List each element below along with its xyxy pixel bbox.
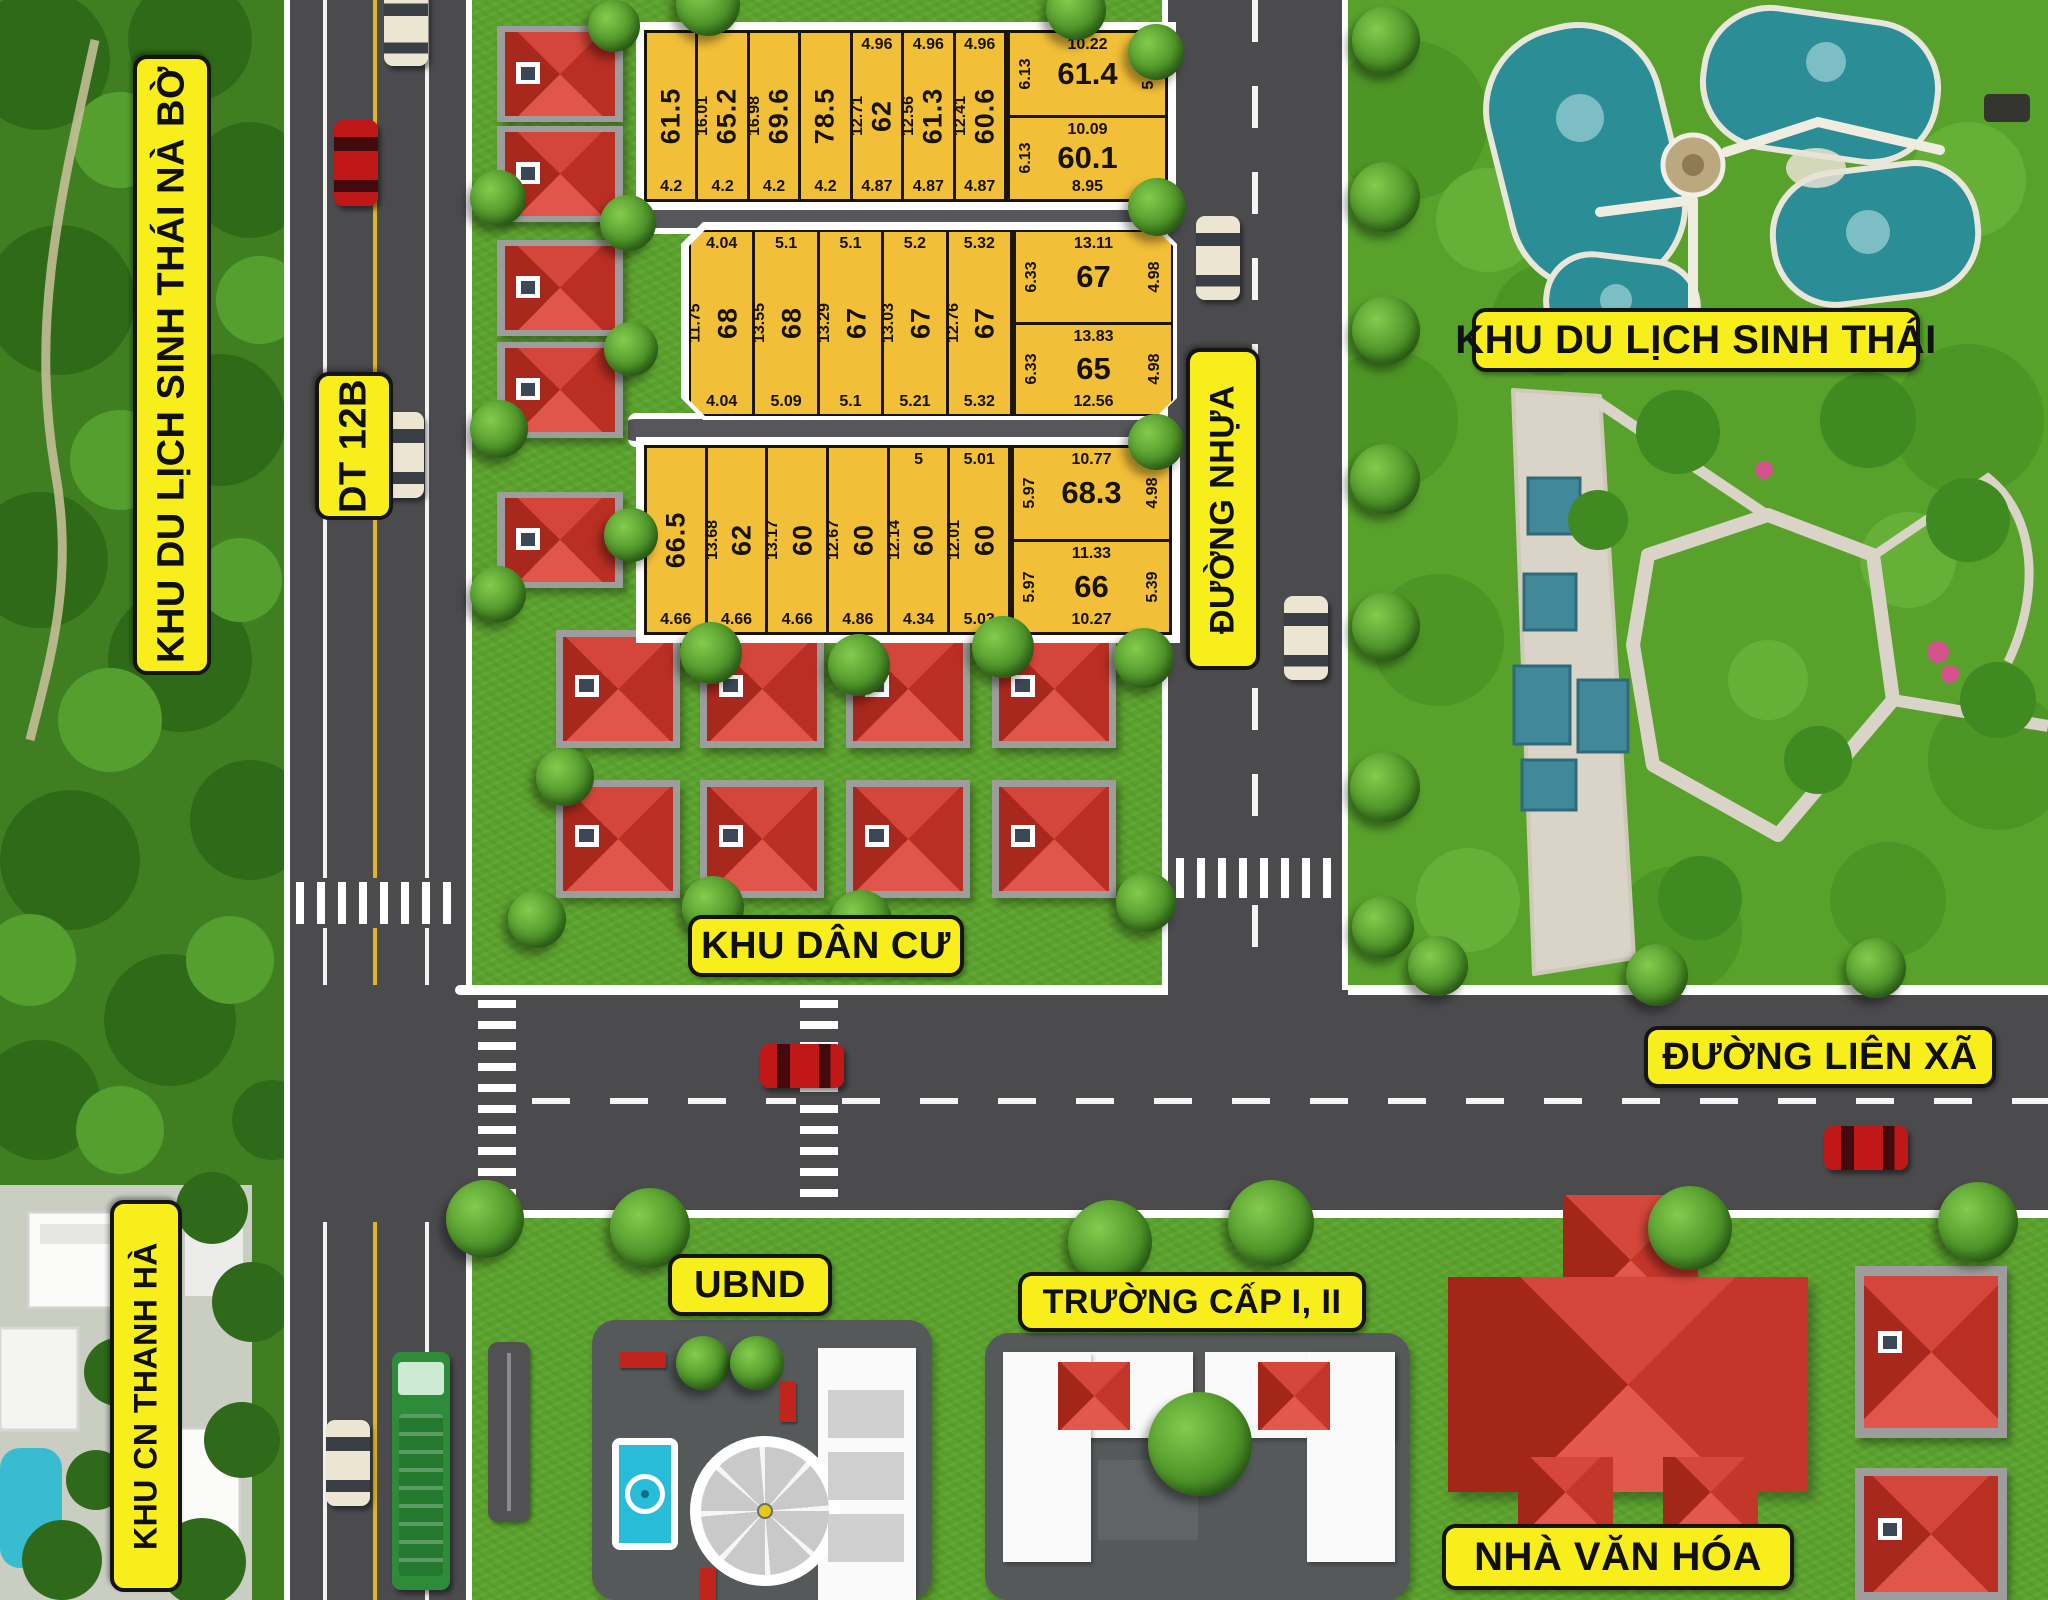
plot-dim-label: 6.13 bbox=[1017, 58, 1035, 89]
plot-dim-label: 6.33 bbox=[1023, 261, 1041, 292]
tree-icon bbox=[1116, 872, 1176, 932]
plot-area-label: 67 bbox=[1076, 259, 1110, 295]
tree-icon bbox=[1128, 24, 1184, 80]
house-icon bbox=[1855, 1468, 2007, 1600]
plot-cell: 5.15.113.2967 bbox=[820, 232, 884, 414]
plot-cell: 54.3412.1460 bbox=[890, 448, 951, 632]
plot-area-label: 78.5 bbox=[810, 88, 841, 145]
zone-label-industrial: KHU CN THANH HÀ bbox=[110, 1200, 182, 1592]
plot-dim-label: 16.98 bbox=[746, 96, 764, 136]
car-icon bbox=[384, 0, 428, 66]
plot-block-2-border: 4.044.0411.75685.15.0913.55685.15.113.29… bbox=[681, 222, 1177, 420]
car-icon bbox=[760, 1044, 844, 1088]
plot-strips: 4.044.0411.75685.15.0913.55685.15.113.29… bbox=[691, 232, 1013, 414]
tree-icon bbox=[1350, 444, 1420, 514]
tree-icon bbox=[470, 566, 526, 622]
plot-dim-label: 4.34 bbox=[890, 611, 948, 629]
plot-area-label: 68 bbox=[777, 307, 808, 339]
car-icon bbox=[1284, 596, 1328, 680]
plot-cell: 5.015.0312.0160 bbox=[950, 448, 1011, 632]
plot-area-label: 68.3 bbox=[1061, 475, 1121, 511]
plot-dim-label: 11.33 bbox=[1014, 545, 1169, 563]
plot-area-label: 67 bbox=[841, 307, 872, 339]
plot-dim-label: 5.97 bbox=[1021, 571, 1039, 602]
plot-cell: 4.964.8712.7162 bbox=[853, 33, 904, 199]
plot-dim-label: 10.27 bbox=[1014, 611, 1169, 629]
plot-dim-label: 11.75 bbox=[687, 303, 705, 342]
label-school: TRƯỜNG CẤP I, II bbox=[1018, 1272, 1366, 1332]
plot-dim-label: 5.32 bbox=[949, 393, 1010, 411]
curb bbox=[455, 985, 1168, 995]
tree-icon bbox=[1648, 1186, 1732, 1270]
road-label-duong-nhua: ĐƯỜNG NHỰA bbox=[1186, 348, 1260, 670]
label-ubnd: UBND bbox=[668, 1254, 832, 1316]
plot-dim-label: 4.2 bbox=[750, 178, 798, 196]
tree-icon bbox=[1148, 1392, 1252, 1496]
tree-icon bbox=[1938, 1182, 2018, 1262]
plot-cell: 4.261.5 bbox=[647, 33, 698, 199]
plot-cell: 4.964.8712.4160.6 bbox=[956, 33, 1007, 199]
plot-block-1: 4.261.54.216.0165.24.216.9869.64.278.54.… bbox=[644, 30, 1168, 202]
tree-icon bbox=[1128, 178, 1186, 236]
plot-dim-label: 12.67 bbox=[825, 520, 843, 560]
plot-dim-label: 13.17 bbox=[764, 520, 782, 560]
plot-dim-label: 13.83 bbox=[1016, 328, 1171, 346]
plot-dim-label: 13.68 bbox=[703, 520, 721, 560]
tree-icon bbox=[1626, 944, 1688, 1006]
plot-area-label: 60 bbox=[909, 524, 940, 556]
culture-house-building bbox=[1448, 1252, 1808, 1512]
plot-dim-label: 13.29 bbox=[816, 303, 834, 343]
tree-icon bbox=[680, 622, 742, 684]
plot-cell: 4.216.9869.6 bbox=[750, 33, 801, 199]
building-section bbox=[828, 1390, 904, 1438]
plot-dim-label: 5.97 bbox=[1021, 478, 1039, 509]
tree-icon bbox=[1228, 1180, 1314, 1266]
plot-dim-label: 4.87 bbox=[904, 178, 952, 196]
road-label-lien-xa: ĐƯỜNG LIÊN XÃ bbox=[1644, 1026, 1996, 1088]
plot-dim-label: 6.33 bbox=[1023, 354, 1041, 385]
plot-dim-label: 12.56 bbox=[1016, 393, 1171, 411]
plot-dim-label: 16.01 bbox=[694, 96, 712, 136]
fountain-icon bbox=[612, 1438, 678, 1550]
tree-icon bbox=[604, 508, 658, 562]
tree-icon bbox=[1114, 628, 1174, 688]
tree-icon bbox=[536, 748, 594, 806]
bus-shelter bbox=[488, 1342, 530, 1522]
tree-icon bbox=[1350, 162, 1420, 232]
plot-dim-label: 5.1 bbox=[755, 235, 816, 253]
plot-dim-label: 5.2 bbox=[884, 235, 945, 253]
car-icon bbox=[1196, 216, 1240, 300]
plot-area-label: 66.5 bbox=[660, 512, 691, 569]
house-icon bbox=[556, 630, 680, 748]
plot-dim-label: 4.98 bbox=[1146, 261, 1164, 292]
plot-dim-label: 5.01 bbox=[950, 451, 1008, 469]
plot-dim-label: 12.01 bbox=[946, 520, 964, 560]
plot-cell: 5.25.2113.0367 bbox=[884, 232, 948, 414]
road-label-dt12b: DT 12B bbox=[315, 372, 393, 520]
plot-cell: 4.964.8712.5661.3 bbox=[904, 33, 955, 199]
plot-dim-label: 5 bbox=[890, 451, 948, 469]
plot-block-2: 4.044.0411.75685.15.0913.55685.15.113.29… bbox=[689, 230, 1173, 416]
plot-cell: 4.216.0165.2 bbox=[698, 33, 749, 199]
center-line bbox=[532, 1098, 796, 1104]
plot-dim-label: 12.71 bbox=[848, 96, 866, 136]
tree-icon bbox=[1352, 592, 1420, 660]
plot-area-label: 61.3 bbox=[918, 88, 949, 145]
curb bbox=[466, 1215, 472, 1600]
plot-dim-label: 4.87 bbox=[956, 178, 1004, 196]
tree-icon bbox=[470, 170, 526, 226]
plot-dim-label: 5.1 bbox=[820, 235, 881, 253]
plot-dim-label: 5.1 bbox=[820, 393, 881, 411]
plot-cell: 5.325.3212.7667 bbox=[949, 232, 1013, 414]
school-roof bbox=[1258, 1362, 1330, 1430]
plot-area-label: 62 bbox=[866, 100, 897, 132]
truck-icon bbox=[392, 1352, 450, 1590]
tree-icon bbox=[508, 890, 566, 948]
tree-icon bbox=[1350, 752, 1420, 822]
plot-cell: 11.3310.275.975.3966 bbox=[1014, 542, 1169, 633]
master-plan-map: 4.261.54.216.0165.24.216.9869.64.278.54.… bbox=[0, 0, 2048, 1600]
zone-label-residential: KHU DÂN CƯ bbox=[688, 915, 964, 977]
plot-dim-label: 10.09 bbox=[1010, 121, 1165, 139]
house-icon bbox=[497, 240, 623, 336]
plot-cell: 13.8312.566.334.9865 bbox=[1016, 325, 1171, 415]
plot-dim-label: 12.56 bbox=[900, 96, 918, 136]
plot-dim-label: 4.04 bbox=[691, 235, 752, 253]
plot-cell: 4.6613.6862 bbox=[708, 448, 769, 632]
plot-area-label: 67 bbox=[970, 307, 1001, 339]
plot-area-label: 65 bbox=[1076, 351, 1110, 387]
tree-icon bbox=[470, 400, 528, 458]
tree-icon bbox=[446, 1180, 524, 1258]
plot-area-label: 67 bbox=[906, 307, 937, 339]
plot-dim-label: 4.66 bbox=[768, 611, 826, 629]
curb bbox=[466, 0, 472, 985]
curb bbox=[1342, 0, 1348, 990]
plot-dim-label: 12.41 bbox=[951, 96, 969, 136]
tree-icon bbox=[972, 616, 1034, 678]
plot-dim-label: 4.96 bbox=[956, 36, 1004, 54]
tree-icon bbox=[730, 1336, 784, 1390]
plot-dim-label: 4.04 bbox=[691, 393, 752, 411]
car-icon bbox=[334, 120, 378, 206]
plot-area-label: 60 bbox=[787, 524, 818, 556]
house-icon bbox=[1855, 1266, 2007, 1438]
tree-icon bbox=[1128, 414, 1184, 470]
plot-strips: 4.6666.54.6613.68624.6613.17604.8612.676… bbox=[647, 448, 1011, 632]
crosswalk bbox=[296, 882, 464, 924]
plot-dim-label: 12.14 bbox=[885, 520, 903, 560]
plot-cell: 13.116.334.9867 bbox=[1016, 232, 1171, 325]
plot-area-label: 62 bbox=[727, 524, 758, 556]
plot-area-label: 68 bbox=[712, 307, 743, 339]
plot-dim-label: 5.09 bbox=[755, 393, 816, 411]
house-icon bbox=[846, 780, 970, 898]
house-icon bbox=[992, 780, 1116, 898]
plot-dim-label: 4.96 bbox=[904, 36, 952, 54]
plot-area-label: 60.1 bbox=[1057, 140, 1117, 176]
plot-rightcol: 10.775.974.9868.311.3310.275.975.3966 bbox=[1011, 448, 1169, 632]
plot-cell: 4.278.5 bbox=[801, 33, 852, 199]
plot-dim-label: 4.86 bbox=[829, 611, 887, 629]
plot-dim-label: 13.11 bbox=[1016, 235, 1171, 253]
tree-icon bbox=[1408, 936, 1468, 996]
school-roof bbox=[1058, 1362, 1130, 1430]
plot-block-3: 4.6666.54.6613.68624.6613.17604.8612.676… bbox=[644, 445, 1172, 635]
plot-dim-label: 4.96 bbox=[853, 36, 901, 54]
bench bbox=[700, 1568, 716, 1600]
plot-area-label: 61.4 bbox=[1057, 56, 1117, 92]
plot-dim-label: 5.21 bbox=[884, 393, 945, 411]
plot-dim-label: 6.13 bbox=[1017, 143, 1035, 174]
plot-dim-label: 13.55 bbox=[751, 303, 769, 343]
plot-dim-label: 4.98 bbox=[1146, 354, 1164, 385]
zone-label-eco-park: KHU DU LỊCH SINH THÁI bbox=[1472, 308, 1920, 372]
tree-icon bbox=[604, 322, 658, 376]
plot-area-label: 60.6 bbox=[969, 88, 1000, 145]
plot-dim-label: 5.32 bbox=[949, 235, 1010, 253]
plot-rightcol: 13.116.334.986713.8312.566.334.9865 bbox=[1013, 232, 1171, 414]
plot-cell: 4.8612.6760 bbox=[829, 448, 890, 632]
tree-icon bbox=[1352, 896, 1414, 958]
tree-icon bbox=[588, 0, 640, 52]
tree-icon bbox=[600, 195, 656, 251]
tree-icon bbox=[1846, 938, 1906, 998]
curb bbox=[284, 0, 290, 1600]
plot-cell: 5.15.0913.5568 bbox=[755, 232, 819, 414]
plot-dim-label: 4.87 bbox=[853, 178, 901, 196]
plot-dim-label: 5.39 bbox=[1144, 571, 1162, 602]
plot-dim-label: 4.2 bbox=[647, 178, 695, 196]
plot-cell: 4.044.0411.7568 bbox=[691, 232, 755, 414]
plot-area-label: 61.5 bbox=[656, 88, 687, 145]
building-section bbox=[828, 1452, 904, 1500]
plot-dim-label: 4.98 bbox=[1144, 478, 1162, 509]
plot-cell: 4.6613.1760 bbox=[768, 448, 829, 632]
plot-dim-label: 4.2 bbox=[801, 178, 849, 196]
plot-area-label: 60 bbox=[969, 524, 1000, 556]
plot-area-label: 65.2 bbox=[712, 88, 743, 145]
car-icon bbox=[326, 1420, 370, 1506]
building-section bbox=[828, 1514, 904, 1562]
tree-icon bbox=[1352, 296, 1420, 364]
crosswalk bbox=[800, 1000, 838, 1210]
plot-strips: 4.261.54.216.0165.24.216.9869.64.278.54.… bbox=[647, 33, 1007, 199]
circular-plaza bbox=[690, 1436, 840, 1586]
plot-dim-label: 12.76 bbox=[944, 303, 962, 343]
crosswalk bbox=[1176, 858, 1342, 898]
tree-icon bbox=[828, 634, 890, 696]
plot-dim-label: 4.2 bbox=[698, 178, 746, 196]
plot-area-label: 60 bbox=[848, 524, 879, 556]
plot-area-label: 69.6 bbox=[763, 88, 794, 145]
plot-area-label: 66 bbox=[1074, 569, 1108, 605]
crosswalk bbox=[478, 1000, 516, 1210]
plot-dim-label: 13.03 bbox=[880, 303, 898, 343]
tree-icon bbox=[676, 1336, 730, 1390]
zone-label-eco-nabo: KHU DU LỊCH SINH THÁI NÀ BỜ bbox=[133, 55, 211, 675]
bench bbox=[620, 1352, 666, 1368]
bench bbox=[780, 1382, 796, 1422]
label-culture-house: NHÀ VĂN HÓA bbox=[1442, 1524, 1794, 1590]
car-icon bbox=[1824, 1126, 1908, 1170]
eco-park-area bbox=[1348, 0, 2048, 1000]
tree-icon bbox=[1352, 6, 1420, 74]
